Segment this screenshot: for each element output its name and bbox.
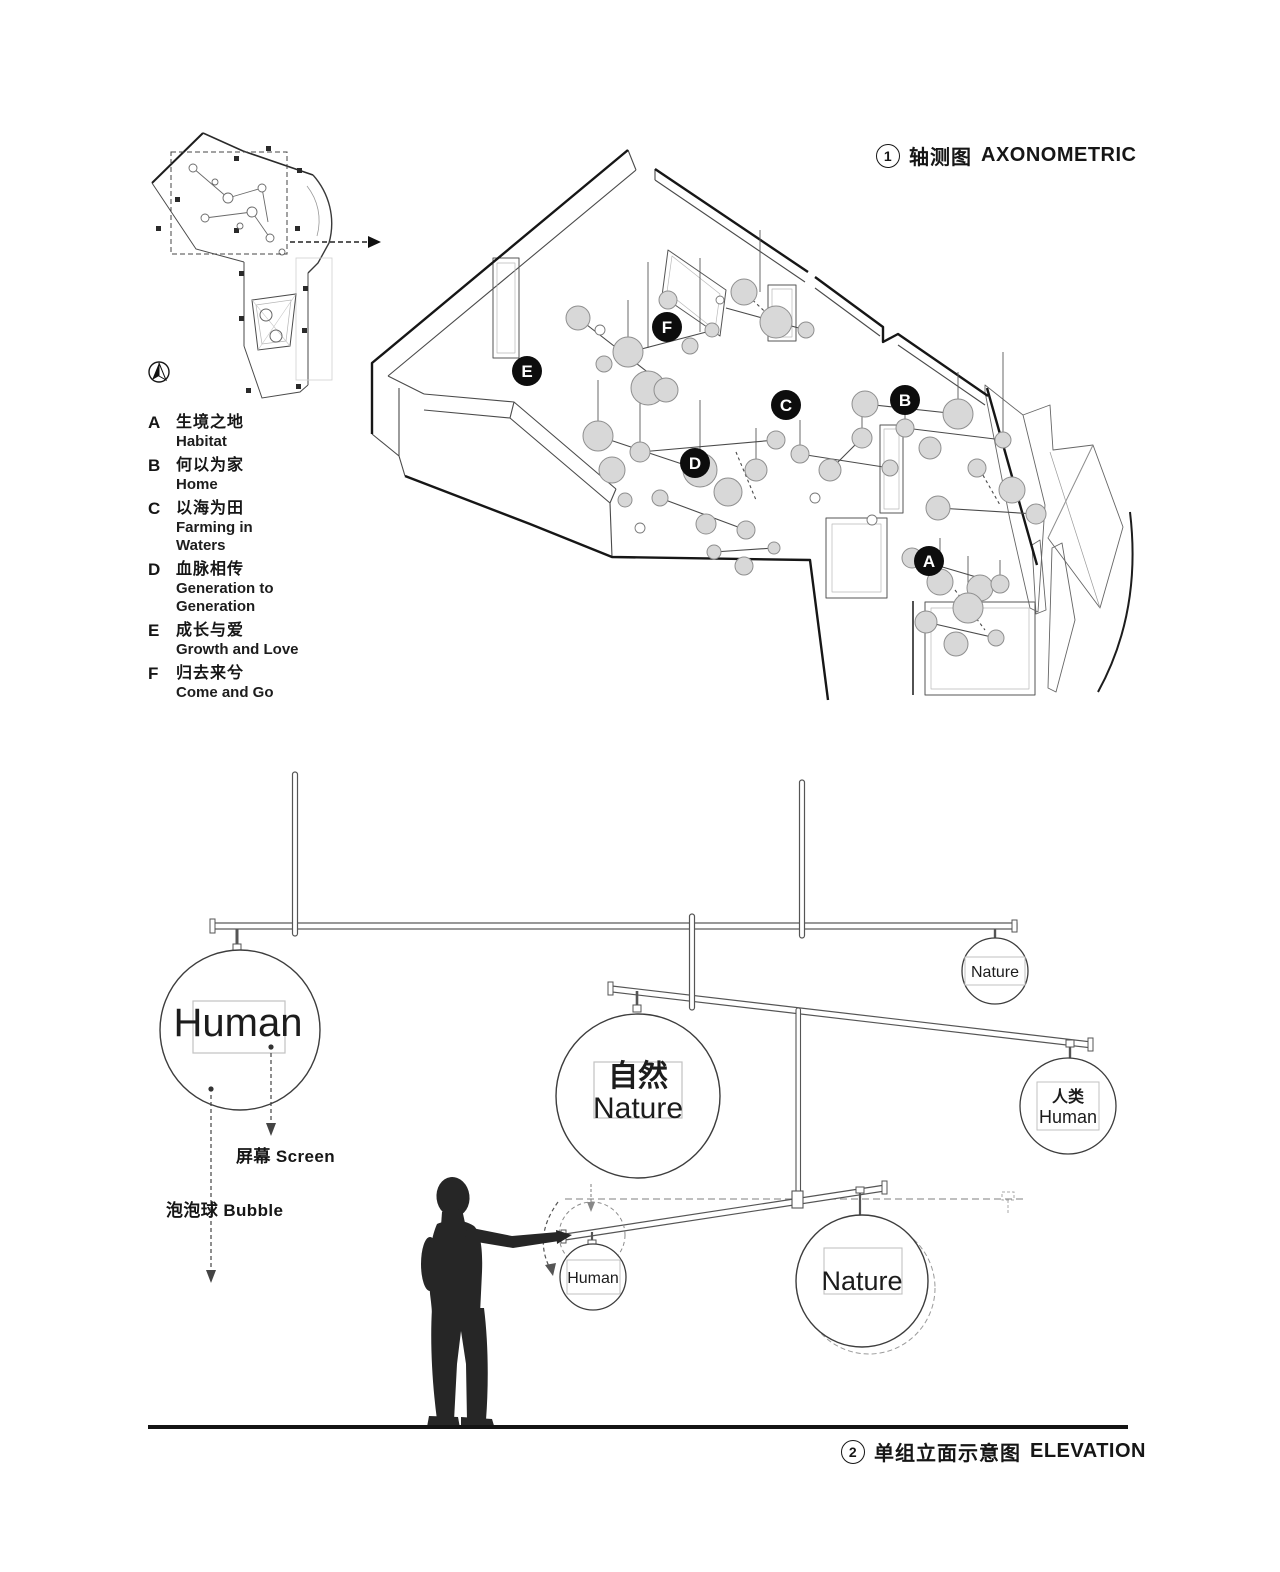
ball-nature-top-right-label: Nature [971, 964, 1019, 981]
legend-item-growth: E 成长与爱 Growth and Love [148, 621, 338, 659]
legend-letter: F [148, 664, 176, 702]
badge-E: E [512, 356, 542, 386]
badge-D: D [680, 448, 710, 478]
caption-2-number-icon: 2 [841, 1440, 865, 1464]
ball-nature-center-zh: 自然 [608, 1059, 668, 1093]
plan-columns [156, 146, 308, 393]
badge-B: B [890, 385, 920, 415]
badge-C-letter: C [780, 396, 792, 415]
badge-D-letter: D [689, 454, 701, 473]
legend-zh: 血脉相传 [176, 560, 274, 580]
tier3-link-rod [796, 1008, 801, 1200]
legend-item-habitat: A 生境之地 Habitat [148, 413, 338, 451]
legend-item-comeandgo: F 归去来兮 Come and Go [148, 664, 338, 702]
top-bar [212, 923, 1017, 929]
key-plan [149, 133, 381, 398]
legend-item-home: B 何以为家 Home [148, 456, 338, 494]
legend-letter: B [148, 456, 176, 494]
legend-item-farming: C 以海为田 Farming in Waters [148, 499, 338, 555]
caption-1-number-icon: 1 [876, 144, 900, 168]
legend-en: Generation to Generation [176, 580, 274, 616]
legend-en: Home [176, 476, 244, 494]
axonometric-caption-zh: 轴测图 [909, 141, 972, 170]
badge-E-letter: E [521, 362, 532, 381]
legend-zh: 何以为家 [176, 456, 244, 476]
legend-en: Farming in Waters [176, 519, 253, 555]
plan-mobiles [189, 164, 285, 255]
elevation-caption-en: ELEVATION [1030, 1440, 1146, 1463]
legend-item-generation: D 血脉相传 Generation to Generation [148, 560, 338, 616]
bubble-callout-label: 泡泡球 Bubble [166, 1196, 283, 1221]
legend-letter: D [148, 560, 176, 616]
ball-human-large-label: Human [174, 1001, 303, 1045]
legend-letter: E [148, 621, 176, 659]
legend-en: Habitat [176, 433, 244, 451]
diagram-sheet: A B C D E F Human [0, 0, 1280, 1572]
badge-B-letter: B [899, 391, 911, 410]
ball-nature-bottom-label: Nature [821, 1266, 902, 1296]
badge-F: F [652, 312, 682, 342]
badge-C: C [771, 390, 801, 420]
legend-en: Come and Go [176, 684, 274, 702]
legend-letter: C [148, 499, 176, 555]
elevation-caption: 2 单组立面示意图 ELEVATION [841, 1437, 1146, 1466]
badge-F-letter: F [662, 318, 672, 337]
ball-human-right [1020, 1058, 1116, 1154]
screen-callout-label: 屏幕 Screen [236, 1142, 335, 1167]
ball-nature-center-en: Nature [593, 1092, 683, 1125]
badge-A: A [914, 546, 944, 576]
legend-zh: 以海为田 [176, 499, 253, 519]
legend-zh: 成长与爱 [176, 621, 299, 641]
legend-zh: 生境之地 [176, 413, 244, 433]
tier3-pivot [792, 1191, 803, 1208]
legend-zh: 归去来兮 [176, 664, 274, 684]
elevation-drawing: Human 自然 Nature Nature 人类 Human [148, 772, 1128, 1429]
ball-human-small-label: Human [567, 1270, 619, 1287]
person-silhouette [421, 1175, 572, 1429]
ceiling-rod-left [293, 772, 298, 936]
zone-legend: A 生境之地 Habitat B 何以为家 Home C 以海为田 Farmin… [148, 413, 338, 707]
elevation-caption-zh: 单组立面示意图 [874, 1437, 1021, 1466]
ball-human-right-en: Human [1039, 1107, 1097, 1127]
tier2-link-rod [690, 914, 695, 1010]
legend-en: Growth and Love [176, 641, 299, 659]
legend-letter: A [148, 413, 176, 451]
axon-mobiles [566, 230, 1046, 656]
ball-human-right-zh: 人类 [1052, 1087, 1085, 1106]
diagram-linework: A B C D E F Human [0, 0, 1280, 1572]
badge-A-letter: A [923, 552, 935, 571]
north-arrow-icon [149, 362, 169, 382]
ceiling-rod-right [800, 780, 805, 938]
axonometric-caption-en: AXONOMETRIC [981, 144, 1137, 167]
axonometric-drawing: A B C D E F [372, 150, 1133, 700]
axonometric-caption: 1 轴测图 AXONOMETRIC [876, 141, 1137, 170]
